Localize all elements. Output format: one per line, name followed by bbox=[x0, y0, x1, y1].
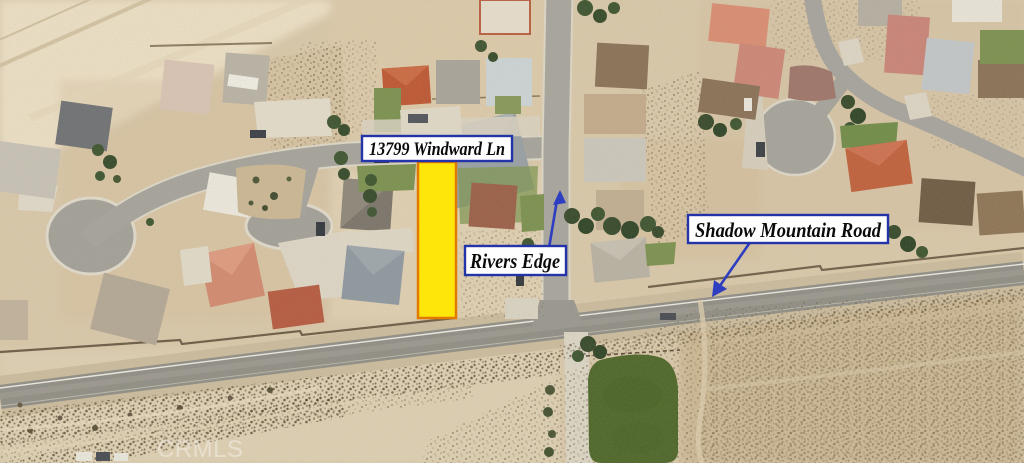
svg-text:CRMLS: CRMLS bbox=[157, 436, 244, 463]
svg-text:13799 Windward Ln: 13799 Windward Ln bbox=[369, 139, 505, 160]
svg-text:Rivers Edge: Rivers Edge bbox=[469, 249, 560, 273]
svg-text:Shadow Mountain Road: Shadow Mountain Road bbox=[695, 218, 881, 242]
